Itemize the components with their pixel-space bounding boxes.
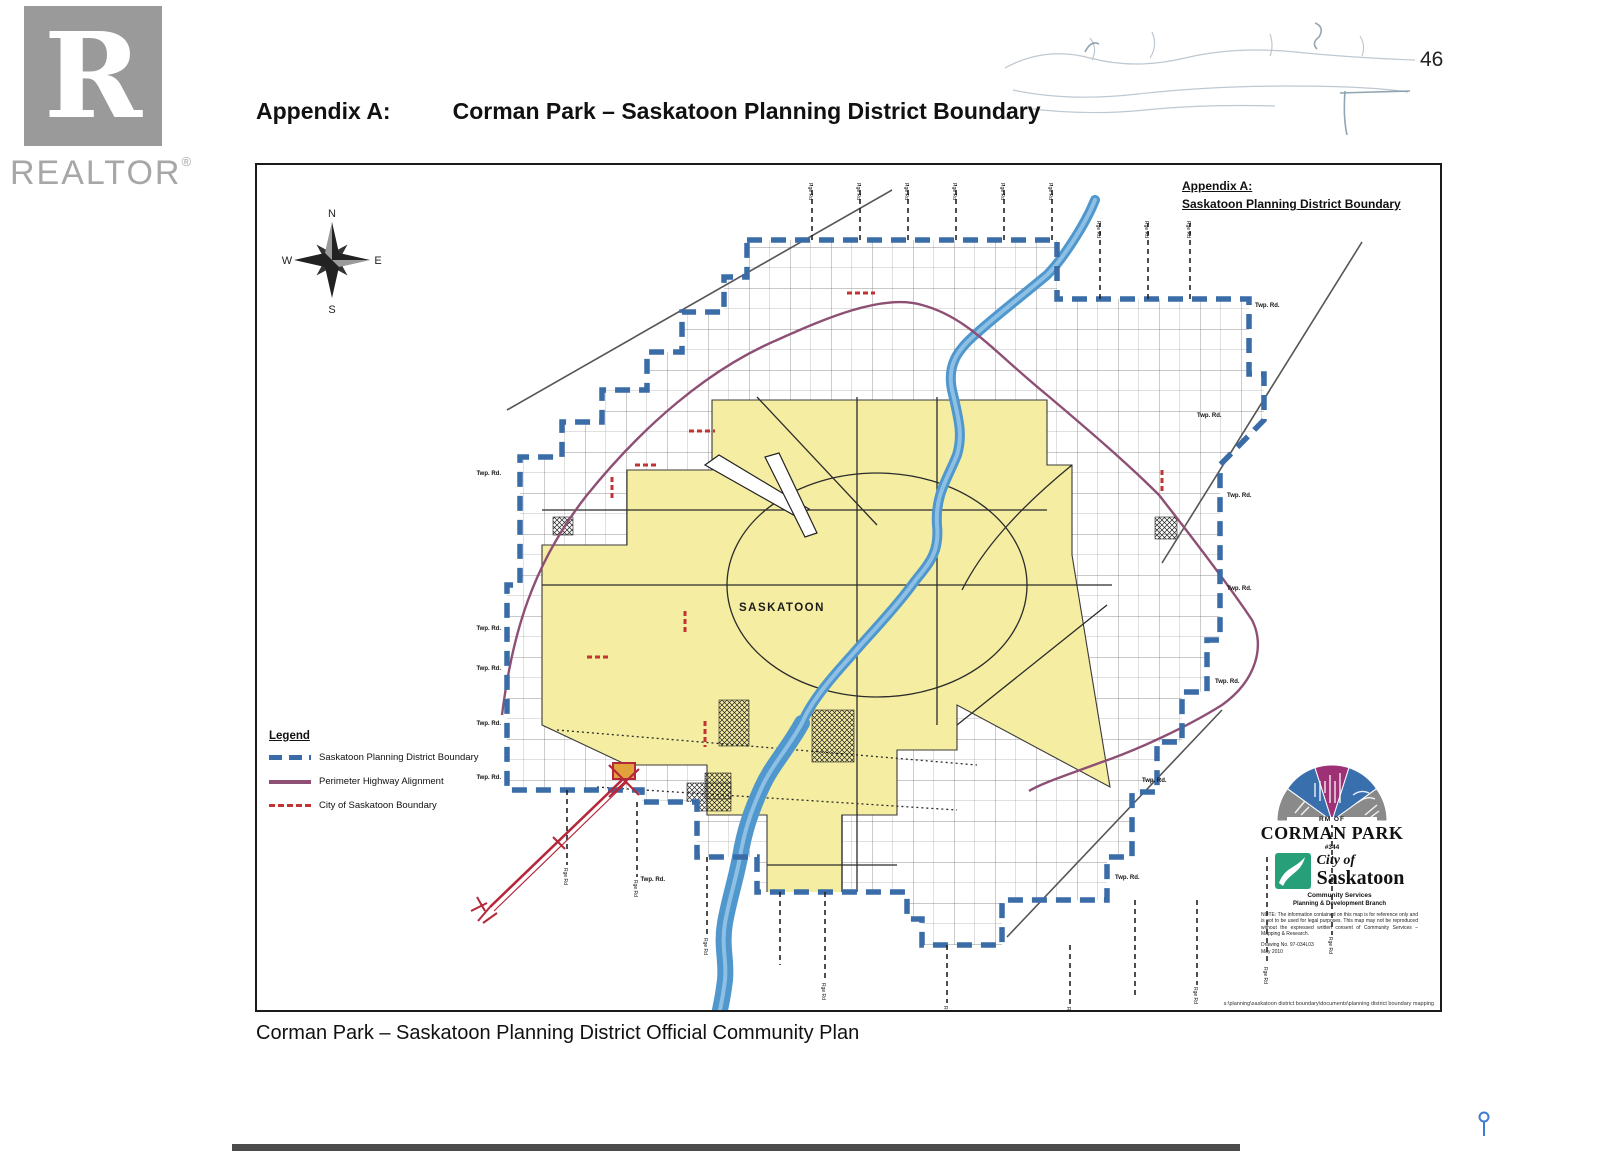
legend-title: Legend (269, 730, 494, 742)
twp-label: Twp. Rd. (476, 721, 501, 727)
map-ref-2: May 2010 (1261, 949, 1418, 956)
rge-label: Rge Rd (702, 938, 708, 955)
realtor-wordmark: REALTOR® (10, 154, 200, 193)
twp-label: Twp. Rd. (1227, 493, 1252, 499)
purple-line-swatch (269, 780, 311, 784)
rge-label: Rge Rd (1143, 221, 1149, 238)
rge-label: Rge Rd (1192, 987, 1198, 1004)
page-number: 46 (1420, 48, 1443, 72)
map-frame: Rge Rd Rge Rd Rge Rd Rge Rd Rge Rd Rge R… (255, 163, 1442, 1012)
twp-label: Twp. Rd. (476, 626, 501, 632)
corman-park-logo: RM OF CORMAN PARK #344 (1247, 763, 1417, 851)
road-grid (257, 225, 1277, 955)
red-dashed-line-swatch (269, 804, 311, 807)
map-disclaimer-note: NOTE: The information contained on this … (1261, 912, 1418, 937)
rge-label: Rge Rd (903, 183, 909, 200)
map-appendix-line1: Appendix A: (1182, 177, 1427, 195)
handwritten-scribble (985, 8, 1445, 138)
realtor-logo-letter: R (44, 17, 142, 135)
realtor-logo-icon: R (24, 6, 162, 146)
legend-item-perimeter-highway: Perimeter Highway Alignment (269, 776, 494, 787)
twp-label: Twp. Rd. (1197, 413, 1222, 419)
rge-label: Rge Rd (942, 1006, 948, 1010)
rge-label: Rge Rd (1185, 221, 1191, 238)
legend-label: Saskatoon Planning District Boundary (319, 752, 478, 763)
map-appendix-header: Appendix A: Saskatoon Planning District … (1182, 177, 1427, 213)
rge-label: Rge Rd (855, 183, 861, 200)
twp-label: Twp. Rd. (1142, 778, 1167, 784)
map-reference-lines: Drawing No. 97-034L03 May 2010 (1261, 942, 1418, 956)
legend-label: City of Saskatoon Boundary (319, 800, 437, 811)
rge-label: Rge Rd (999, 183, 1005, 200)
compass-e: E (374, 255, 381, 267)
twp-label: Twp. Rd. (1115, 875, 1140, 881)
rge-label: Rge Rd (1065, 1007, 1071, 1010)
rge-label: Rge Rd (632, 880, 638, 897)
city-name-label: SASKATOON (739, 602, 825, 614)
legend: Legend Saskatoon Planning District Bound… (269, 730, 494, 824)
rge-label: Rge Rd (562, 868, 568, 885)
blue-pin-icon (1472, 1106, 1496, 1140)
figure-caption: Corman Park – Saskatoon Planning Distric… (256, 1022, 859, 1045)
compass-rose-icon: N S W E (282, 208, 382, 316)
compass-w: W (282, 255, 293, 267)
saskatoon-dept1: Community Services (1257, 892, 1422, 899)
saskatoon-name: Saskatoon (1317, 868, 1405, 889)
realtor-brand-text: REALTOR (10, 154, 181, 192)
rge-label: Rge Rd (820, 983, 826, 1000)
compass-s: S (328, 304, 335, 316)
document-page: { "page": { "number": "46", "title_label… (0, 0, 1600, 1151)
rge-label: Rge Rd (807, 183, 813, 200)
twp-label: Twp. Rd. (476, 666, 501, 672)
title-text: Corman Park – Saskatoon Planning Distric… (453, 98, 1041, 125)
legend-label: Perimeter Highway Alignment (319, 776, 444, 787)
map-file-path: s:\planning\saskatoon district boundary\… (1224, 1001, 1434, 1007)
saskatoon-dept2: Planning & Development Branch (1257, 901, 1422, 907)
legend-item-district-boundary: Saskatoon Planning District Boundary (269, 752, 494, 763)
city-of-saskatoon-logo: City of Saskatoon Community Services Pla… (1257, 853, 1422, 956)
corman-name: CORMAN PARK (1247, 823, 1417, 844)
twp-label: Twp. Rd. (1227, 586, 1252, 592)
rge-label: Rge Rd (1262, 967, 1268, 984)
twp-label: Twp. Rd. (1255, 303, 1280, 309)
title-label: Appendix A: (256, 98, 391, 125)
page-title: Appendix A: Corman Park – Saskatoon Plan… (256, 98, 1041, 125)
rge-label: Rge Rd (1047, 183, 1053, 200)
map-appendix-line2: Saskatoon Planning District Boundary (1182, 195, 1427, 213)
map-ref-1: Drawing No. 97-034L03 (1261, 942, 1418, 949)
saskatoon-cityof: City of (1317, 854, 1405, 868)
corman-number: #344 (1247, 844, 1417, 851)
rge-label: Rge Rd (951, 183, 957, 200)
rge-label: Rge Rd (1095, 221, 1101, 238)
registered-symbol: ® (181, 154, 193, 169)
legend-item-city-boundary: City of Saskatoon Boundary (269, 800, 494, 811)
twp-label: Twp. Rd. (640, 877, 665, 883)
realtor-watermark: R REALTOR® (10, 6, 200, 193)
twp-label: Twp. Rd. (1215, 679, 1240, 685)
compass-n: N (328, 208, 336, 220)
saskatoon-s-icon (1275, 853, 1311, 889)
blue-dashed-line-swatch (269, 755, 311, 760)
twp-label: Twp. Rd. (476, 471, 501, 477)
scan-edge-strip (232, 1144, 1240, 1151)
